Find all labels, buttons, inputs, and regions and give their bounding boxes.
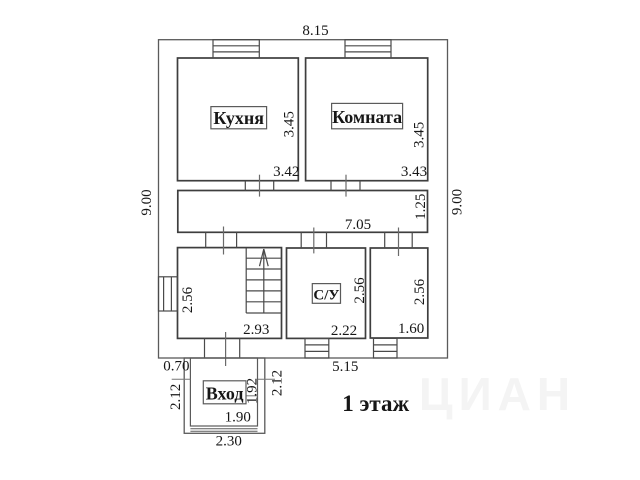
svg-text:Комната: Комната — [332, 107, 402, 127]
svg-text:1.25: 1.25 — [413, 194, 429, 220]
svg-text:2.56: 2.56 — [180, 286, 196, 313]
svg-text:2.30: 2.30 — [216, 434, 242, 450]
svg-text:9.00: 9.00 — [139, 189, 155, 215]
svg-text:Вход: Вход — [206, 384, 244, 404]
svg-text:2.22: 2.22 — [331, 323, 357, 339]
svg-text:1.92: 1.92 — [245, 378, 261, 404]
svg-text:1.90: 1.90 — [225, 410, 251, 426]
svg-text:7.05: 7.05 — [345, 217, 371, 233]
svg-text:3.45: 3.45 — [412, 122, 428, 148]
svg-text:С/У: С/У — [313, 288, 339, 304]
svg-text:2.56: 2.56 — [412, 278, 428, 305]
svg-text:3.45: 3.45 — [282, 111, 298, 137]
svg-text:3.43: 3.43 — [401, 164, 427, 180]
svg-text:2.12: 2.12 — [270, 370, 286, 396]
svg-text:Кухня: Кухня — [213, 108, 264, 128]
svg-text:ЦИАН: ЦИАН — [419, 368, 576, 420]
svg-text:2.56: 2.56 — [352, 277, 368, 304]
svg-text:3.42: 3.42 — [273, 164, 299, 180]
svg-text:1.60: 1.60 — [398, 321, 424, 337]
svg-text:8.15: 8.15 — [302, 23, 328, 39]
svg-text:0.70: 0.70 — [163, 359, 189, 375]
svg-text:2.12: 2.12 — [168, 384, 184, 410]
svg-text:5.15: 5.15 — [332, 359, 358, 375]
svg-text:9.00: 9.00 — [449, 189, 465, 215]
svg-text:1 этаж: 1 этаж — [342, 391, 409, 416]
svg-text:2.93: 2.93 — [243, 322, 269, 338]
